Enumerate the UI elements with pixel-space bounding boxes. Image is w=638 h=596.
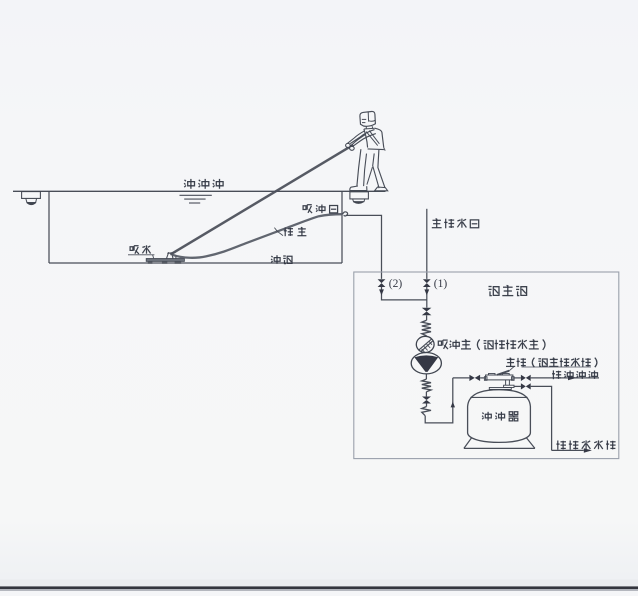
svg-text:(1): (1) [434, 278, 448, 290]
svg-text:(2): (2) [389, 278, 403, 290]
